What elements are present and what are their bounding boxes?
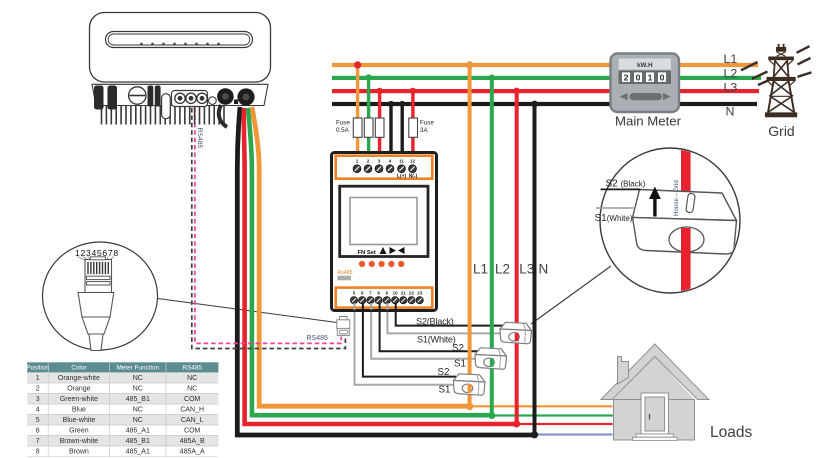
svg-text:485_B1: 485_B1 (126, 396, 150, 403)
svg-text:Rs485: Rs485 (338, 270, 353, 276)
svg-text:L(+): L(+) (397, 173, 407, 179)
svg-text:L3: L3 (724, 80, 738, 94)
svg-text:kW.H: kW.H (637, 62, 653, 69)
svg-text:Position: Position (26, 365, 49, 372)
svg-text:485_B1: 485_B1 (126, 438, 150, 445)
svg-text:485A_B: 485A_B (180, 438, 205, 445)
svg-text:N: N (539, 262, 549, 277)
svg-text:L1: L1 (724, 52, 738, 66)
svg-text:CAN_L: CAN_L (181, 417, 204, 424)
svg-text:Main Meter: Main Meter (615, 114, 682, 129)
svg-text:NC: NC (187, 386, 197, 393)
svg-text:0: 0 (660, 73, 665, 83)
svg-text:10: 10 (393, 291, 398, 296)
svg-text:2: 2 (624, 73, 629, 83)
svg-text:S1: S1 (454, 359, 466, 370)
svg-text:N: N (726, 105, 735, 119)
svg-text:22: 22 (409, 291, 414, 296)
svg-text:S2: S2 (438, 367, 450, 378)
svg-text:Green-white: Green-white (60, 396, 98, 403)
svg-text:4: 4 (389, 159, 392, 164)
svg-text:RS485: RS485 (196, 128, 203, 149)
svg-text:COM: COM (184, 428, 201, 435)
svg-text:NC: NC (133, 407, 143, 414)
svg-text:NC: NC (133, 386, 143, 393)
svg-text:2: 2 (367, 159, 370, 164)
svg-text:House→Grid: House→Grid (673, 180, 680, 216)
svg-text:7: 7 (36, 438, 40, 445)
svg-text:11: 11 (399, 159, 404, 164)
svg-text:2: 2 (36, 386, 40, 393)
svg-text:21: 21 (401, 291, 406, 296)
svg-text:1: 1 (356, 159, 359, 164)
svg-text:485_A1: 485_A1 (126, 428, 150, 435)
svg-text:L1: L1 (473, 262, 488, 277)
svg-text:12: 12 (410, 159, 416, 164)
svg-text:485_A1: 485_A1 (126, 449, 150, 456)
svg-text:CAN_H: CAN_H (180, 407, 204, 414)
svg-text:S2: S2 (452, 343, 464, 354)
svg-text:485A_A: 485A_A (180, 449, 205, 456)
svg-text:3: 3 (378, 159, 381, 164)
svg-text:S1: S1 (439, 384, 451, 395)
svg-text:FN Set: FN Set (358, 250, 376, 256)
svg-text:Fuse: Fuse (336, 120, 350, 127)
svg-text:6: 6 (36, 428, 40, 435)
svg-text:4: 4 (36, 407, 40, 414)
svg-text:N(-): N(-) (409, 173, 418, 179)
svg-text:Brown-white: Brown-white (60, 438, 99, 445)
svg-text:3A: 3A (420, 127, 428, 134)
svg-text:COM: COM (184, 396, 201, 403)
svg-text:12345678: 12345678 (75, 248, 119, 258)
svg-text:8: 8 (36, 449, 40, 456)
svg-text:5: 5 (36, 417, 40, 424)
svg-text:Orange-white: Orange-white (58, 375, 100, 382)
svg-text:NC: NC (133, 375, 143, 382)
svg-text:Green: Green (69, 428, 89, 435)
svg-text:L3: L3 (519, 262, 534, 277)
svg-text:Blue-white: Blue-white (63, 417, 96, 424)
svg-text:Loads: Loads (710, 424, 752, 441)
svg-text:RS485: RS485 (182, 365, 202, 372)
svg-text:Brown: Brown (69, 449, 89, 456)
svg-text:0: 0 (636, 73, 641, 83)
svg-text:Fuse: Fuse (420, 120, 434, 127)
svg-text:3: 3 (36, 396, 40, 403)
svg-text:L2: L2 (724, 66, 738, 80)
svg-text:1: 1 (36, 375, 40, 382)
svg-text:Blue: Blue (72, 407, 86, 414)
svg-text:S2(Black): S2(Black) (416, 317, 454, 327)
svg-text:S1(White): S1(White) (417, 335, 456, 345)
svg-text:Meter Function: Meter Function (116, 365, 159, 372)
svg-text:1: 1 (648, 73, 653, 83)
svg-text:NC: NC (187, 375, 197, 382)
svg-text:0.5A: 0.5A (336, 127, 350, 134)
svg-text:23: 23 (417, 291, 422, 296)
svg-text:Color: Color (71, 365, 87, 372)
svg-text:L2: L2 (495, 262, 510, 277)
svg-text:Grid: Grid (768, 123, 794, 139)
svg-text:NC: NC (133, 417, 143, 424)
svg-text:RS485: RS485 (307, 335, 329, 342)
svg-text:S2 (Black): S2 (Black) (606, 179, 646, 190)
svg-text:Orange: Orange (67, 386, 90, 393)
svg-text:S1(White): S1(White) (595, 213, 633, 224)
